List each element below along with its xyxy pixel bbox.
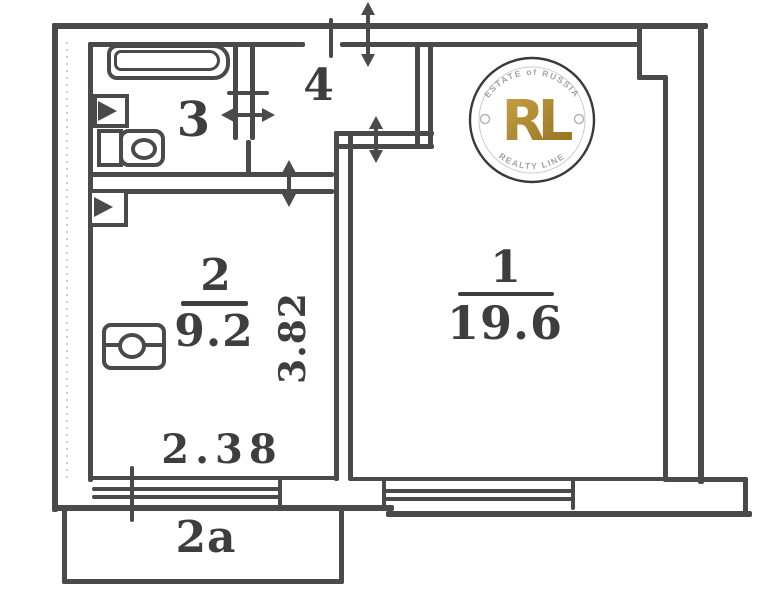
entrance-door-arrow-shaft: [366, 14, 370, 56]
wall-kitchen-room-a: [334, 131, 339, 481]
balcony-bottom-edge: [62, 579, 344, 584]
bath-door-arrow-head-right: [262, 108, 275, 122]
stamp-dot-right: [575, 115, 584, 124]
wall-corner-step-right: [743, 477, 748, 517]
wall-hall-right-b: [428, 42, 433, 149]
vent-shaft-kitchen-icon: [88, 189, 128, 227]
wall-kitchen-room-b: [348, 131, 353, 481]
realty-watermark-stamp: ESTATE of RUSSIA REALTY LINE RL: [462, 55, 602, 187]
bath-door-tick: [227, 91, 269, 95]
entrance-door-tick: [329, 18, 333, 58]
window-room1-endcap-left: [382, 479, 386, 510]
window-room1-pane2: [384, 497, 574, 501]
scan-noise: [66, 42, 68, 480]
wall-hall-right-a: [415, 42, 420, 149]
room-1-area: 19.6: [443, 300, 567, 346]
window-room1-pane1: [384, 489, 574, 493]
window-kitchen-pane2: [92, 495, 282, 499]
bathtub-inner-icon: [114, 50, 220, 71]
vent-arrow-icon: [98, 101, 117, 121]
floor-plan: 1 19.6 2 9.2 3 4 2.38 3.82 2a ESTATE of …: [0, 0, 773, 600]
wall-right-outer: [698, 26, 704, 484]
wall-right-inner: [663, 76, 668, 478]
window-kitchen-endcap: [278, 478, 282, 509]
room-2-area: 9.2: [172, 310, 256, 354]
wall-bottom-outer-right: [386, 511, 752, 517]
balcony-label: 2a: [168, 516, 244, 560]
pilaster-bottom-edge: [637, 75, 668, 80]
balcony-left-edge: [62, 509, 67, 584]
wall-corner-step-top: [663, 477, 748, 482]
wall-bath-bottom-a: [88, 172, 334, 177]
hall-kitchen-door-arrow-head-up: [282, 160, 296, 173]
hall-room1-door-arrow-head-up: [369, 116, 383, 129]
hall-room1-door-arrow-shaft: [374, 128, 378, 152]
bath-door-arrow-head-left: [221, 108, 234, 122]
dimension-bottom-width: 2.38: [160, 430, 284, 470]
window-kitchen-tick: [130, 466, 134, 522]
entrance-door-arrow-head-down: [361, 54, 375, 67]
wall-left-outer: [52, 23, 58, 512]
window-kitchen-pane1: [92, 487, 282, 491]
dimension-side-depth: 3.82: [275, 292, 311, 384]
bath-door-arrow-shaft: [233, 113, 263, 117]
pilaster-left-edge: [637, 26, 642, 80]
vent-arrow-icon: [94, 197, 113, 217]
hall-room1-door-arrow-head-down: [369, 150, 383, 163]
toilet-bowl-circle-icon: [131, 138, 157, 160]
stamp-monogram: RL: [502, 89, 573, 154]
window-sill-room1: [350, 477, 668, 481]
room-1-number: 1: [478, 246, 534, 290]
window-room1-endcap-right: [571, 479, 575, 510]
stamp-dot-left: [481, 115, 490, 124]
kitchen-sink-basin-icon: [118, 333, 146, 359]
balcony-right-edge: [339, 509, 344, 584]
room-2-number: 2: [188, 254, 244, 298]
room-3-number: 3: [170, 96, 218, 144]
vent-shaft-bath-icon: [93, 94, 129, 128]
wall-top-inner-b: [340, 42, 640, 47]
hall-kitchen-door-arrow-head-down: [282, 194, 296, 207]
window-sill-kitchen: [88, 476, 338, 480]
entrance-door-arrow-head-up: [361, 2, 375, 15]
hall-kitchen-door-arrow-shaft: [287, 172, 291, 196]
room-4-number: 4: [294, 64, 344, 108]
wall-top-outer: [52, 23, 708, 29]
